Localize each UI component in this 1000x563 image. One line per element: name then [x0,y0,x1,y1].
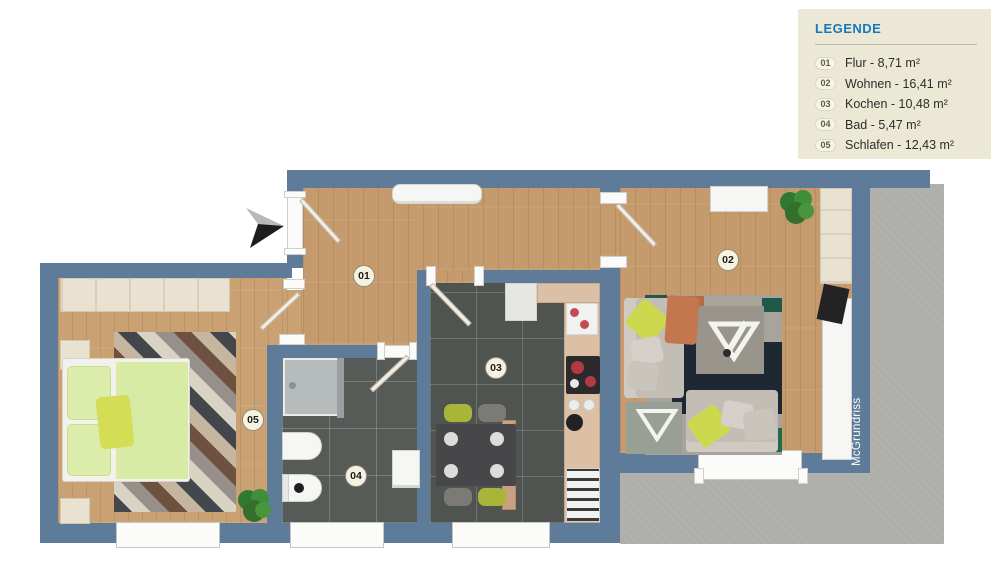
table-plate-icon [490,464,504,478]
dining-chair-gray-bl [444,488,472,506]
legend-item-number: 01 [815,57,836,70]
legend-item-kochen: 03 Kochen - 10,48 m² [815,94,991,115]
watermark-triangle-icon [708,320,760,362]
living-wardrobe [820,188,852,284]
kitchen-plate2-icon [583,399,595,411]
legend-item-label: Wohnen - 16,41 m² [845,77,952,91]
bedroom-plant-icon [234,484,274,526]
sofa-throw-orange [664,295,699,345]
living-door-jamb-bottom [600,256,627,268]
dining-chair-green-tl [444,404,472,422]
dining-chair-green-br [478,488,506,506]
bedroom-wardrobe [60,278,230,312]
legend-item-schlafen: 05 Schlafen - 12,43 m² [815,135,991,156]
room-label-04: 04 [345,465,367,487]
kitchen-window [452,522,550,548]
bed-pillow-yellow [95,394,134,449]
legend-panel: LEGENDE 01 Flur - 8,71 m² 02 Wohnen - 16… [798,9,991,159]
north-arrow-icon [244,202,286,250]
living-doorway [600,204,620,256]
legend-item-label: Flur - 8,71 m² [845,56,920,70]
bath-cabinet [392,450,420,488]
wall-bedroom-top [40,263,292,278]
kitchen-plate-icon [568,399,580,411]
legend-item-bad: 04 Bad - 5,47 m² [815,115,991,136]
living-plant-icon [776,186,816,228]
toilet-drain-icon [294,483,304,493]
legend-item-flur: 01 Flur - 8,71 m² [815,53,991,74]
legend-item-label: Kochen - 10,48 m² [845,97,948,111]
terrace-door-sill-left [694,468,704,484]
wall-left [40,263,58,543]
bathroom-door-jamb-left [377,342,385,360]
room-label-02: 02 [717,249,739,271]
oven [566,468,600,522]
legend-item-number: 05 [815,139,836,152]
kitchen-sink [566,303,598,335]
entrance-door-jamb-bottom [284,248,306,255]
bedroom-door-jamb-bottom [279,334,305,345]
bedroom-window [116,522,220,548]
floorplan-image: McGrundriss 01 02 03 04 05 LEGENDE 01 Fl… [0,0,1000,563]
bath-sink [282,432,322,460]
kitchen-doorway [432,270,476,283]
cooktop-pot2-icon [585,376,596,387]
terrace-door-sill-right [798,468,808,484]
bedroom-door-jamb-top [283,279,305,289]
table-plate-icon [444,432,458,446]
wall-top [292,170,930,188]
legend-divider [815,44,977,45]
kettle-icon [566,414,583,431]
radiator [392,184,482,204]
kitchen-sink-bowl2-icon [580,320,589,329]
legend-items: 01 Flur - 8,71 m² 02 Wohnen - 16,41 m² 0… [798,53,991,156]
sideboard [710,186,768,212]
rug-accent-green-tr [762,298,782,312]
cooktop [566,356,600,394]
legend-item-number: 03 [815,98,836,111]
shower-head-icon [289,382,296,389]
kitchen-sink-bowl-icon [570,308,579,317]
shower-glass [337,358,344,418]
cooktop-pot-icon [571,361,584,374]
room-label-05: 05 [242,409,264,431]
legend-title: LEGENDE [815,21,991,36]
table-plate-icon [444,464,458,478]
watermark-text: McGrundriss [851,378,870,466]
bathroom-door-jamb-right [409,342,417,360]
legend-item-number: 04 [815,118,836,131]
dining-chair-gray-tr [478,404,506,422]
legend-item-label: Bad - 5,47 m² [845,118,921,132]
sofa2-pillow-gray2 [742,408,778,442]
kitchen-door-jamb-right [474,266,484,286]
cooktop-lid-icon [570,379,579,388]
sofa-pillow-gray2 [626,360,660,392]
living-door-jamb-top [600,192,627,204]
room-label-01: 01 [353,265,375,287]
legend-item-label: Schlafen - 12,43 m² [845,138,954,152]
room-label-03: 03 [485,357,507,379]
kitchen-counter-top [537,283,600,303]
kitchen-cabinet [505,283,537,321]
bathroom-window [290,522,384,548]
watermark-triangle-icon [636,408,678,442]
legend-item-number: 02 [815,77,836,90]
wall-bath-kitchen [417,270,430,543]
legend-item-wohnen: 02 Wohnen - 16,41 m² [815,74,991,95]
terrace-bottom [620,473,944,544]
nightstand-bottom [60,498,90,524]
table-plate-icon [490,432,504,446]
